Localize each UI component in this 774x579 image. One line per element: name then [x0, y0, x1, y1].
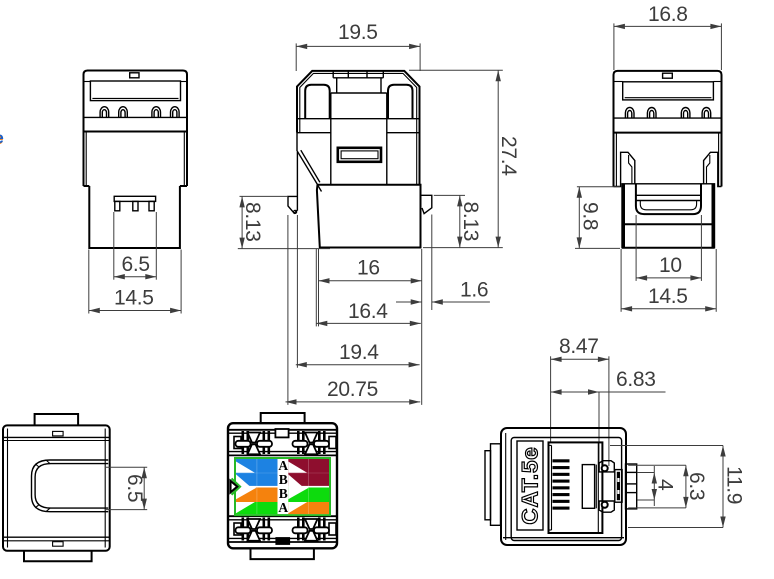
svg-text:6.5: 6.5 [122, 253, 150, 276]
svg-text:14.5: 14.5 [648, 285, 688, 308]
svg-text:11.9: 11.9 [723, 466, 746, 504]
svg-text:16: 16 [357, 257, 380, 280]
svg-text:8.47: 8.47 [559, 335, 599, 358]
svg-text:CAT.5e: CAT.5e [518, 446, 543, 524]
svg-text:4: 4 [654, 479, 677, 491]
svg-text:19.5: 19.5 [338, 21, 378, 44]
svg-text:A: A [278, 458, 288, 473]
svg-text:e: e [0, 130, 4, 147]
svg-text:16.8: 16.8 [648, 3, 688, 26]
svg-text:6.83: 6.83 [616, 368, 656, 391]
svg-text:B: B [279, 486, 288, 501]
svg-text:6.5: 6.5 [123, 474, 146, 502]
svg-text:16.4: 16.4 [348, 300, 388, 323]
svg-text:B: B [279, 472, 288, 487]
svg-text:14.5: 14.5 [114, 287, 154, 310]
svg-text:1.6: 1.6 [460, 279, 488, 302]
svg-text:6.3: 6.3 [685, 472, 708, 500]
svg-text:8.13: 8.13 [459, 202, 482, 242]
svg-text:10: 10 [659, 254, 682, 277]
svg-text:27.4: 27.4 [497, 136, 520, 176]
svg-text:9.8: 9.8 [579, 202, 602, 230]
svg-text:20.75: 20.75 [327, 378, 378, 401]
svg-text:19.4: 19.4 [339, 341, 379, 364]
svg-text:8.13: 8.13 [241, 202, 264, 242]
svg-text:A: A [278, 500, 288, 515]
